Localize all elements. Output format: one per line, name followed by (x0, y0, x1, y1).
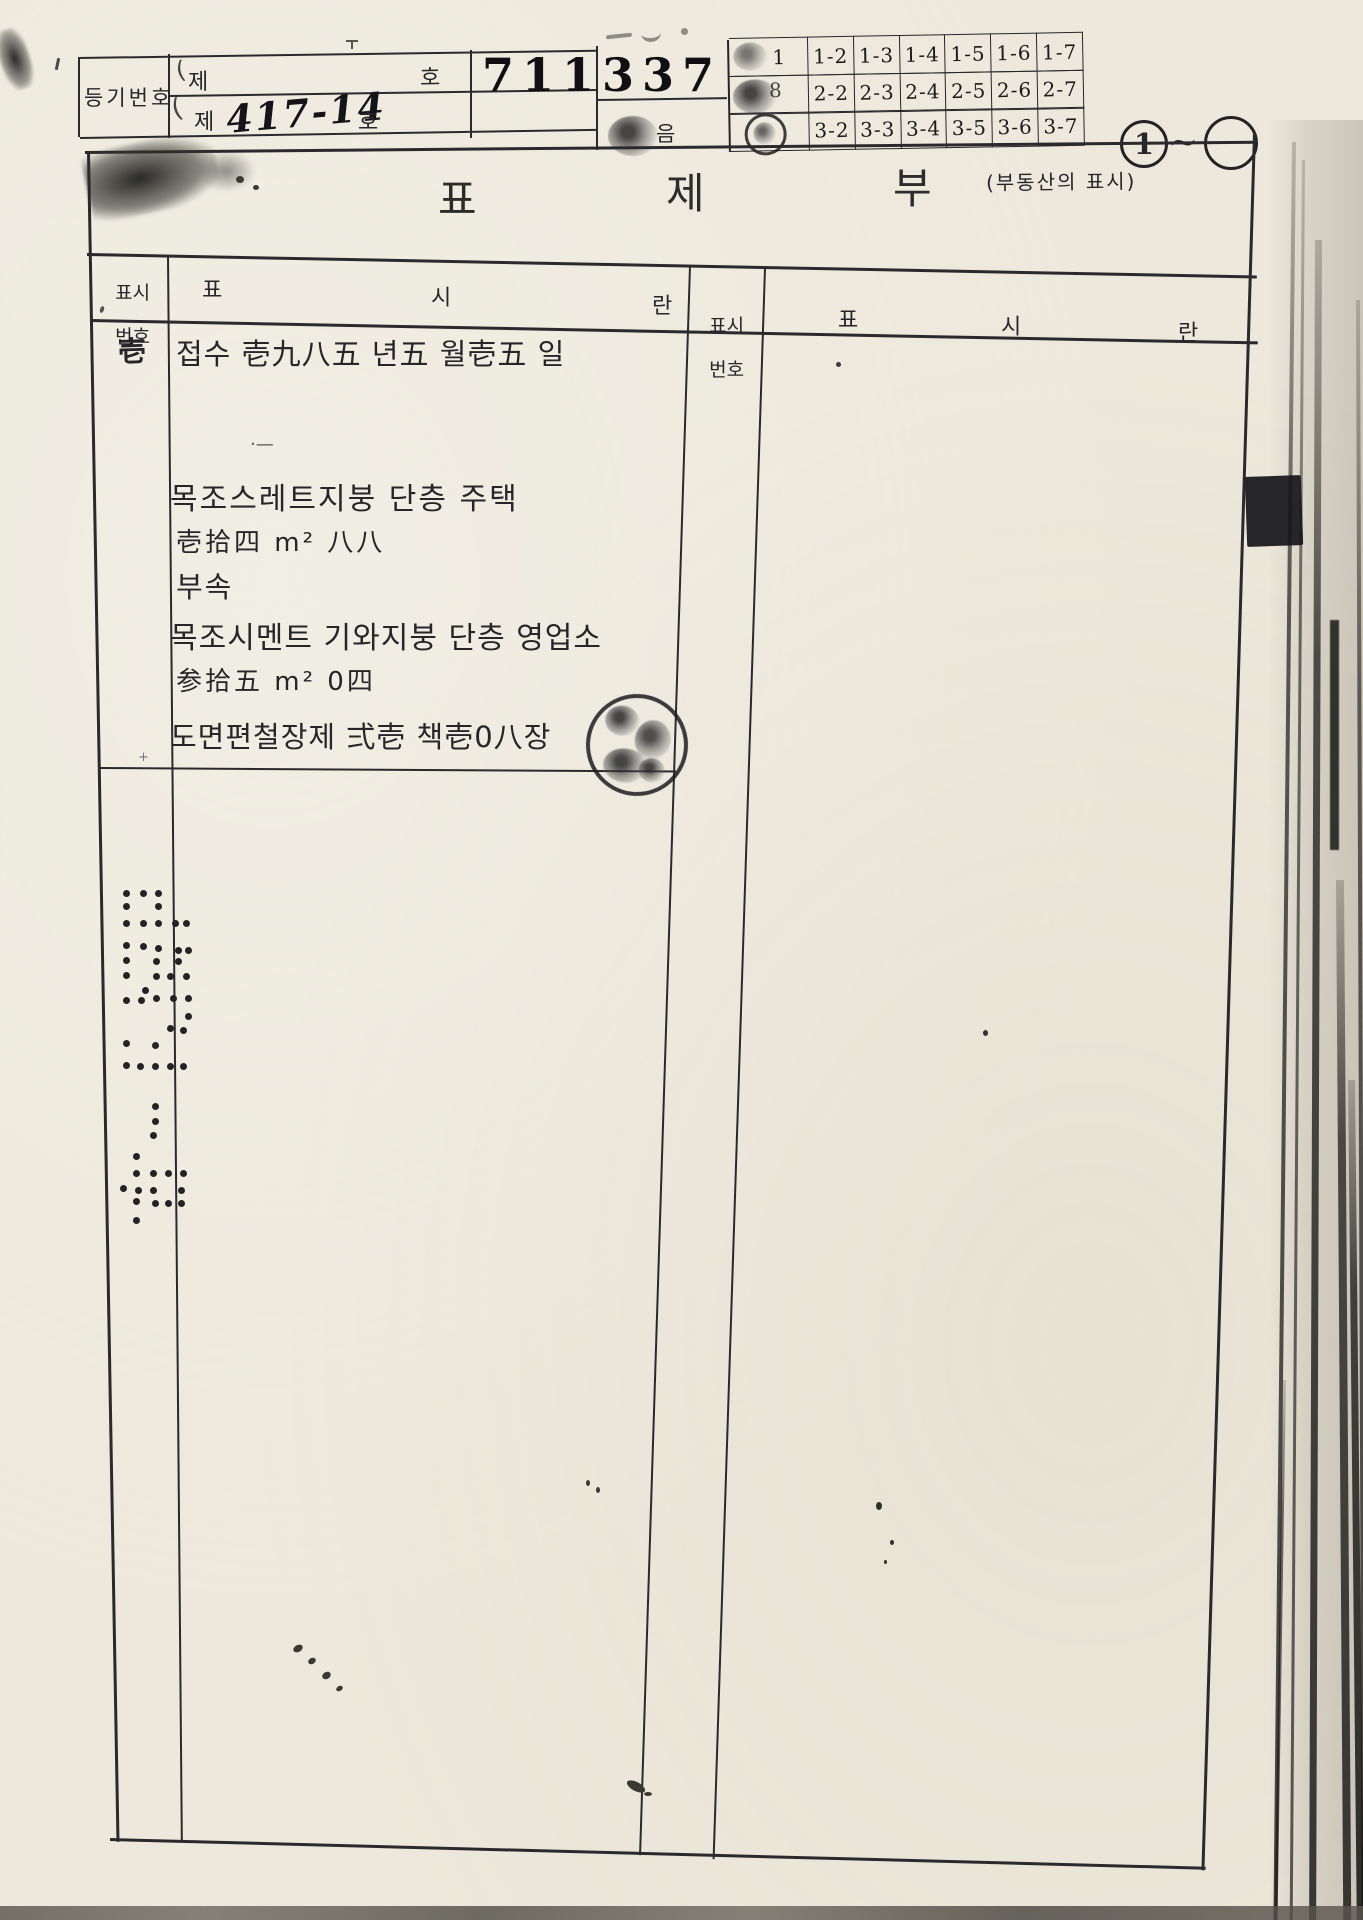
pen-scribble-artifact (681, 28, 688, 35)
circular-seal-stamp (744, 113, 787, 156)
table-border (87, 253, 1257, 278)
serial-number: 711337 (482, 48, 722, 102)
ink-speck (983, 1030, 988, 1036)
grid-first-value: 1 (772, 45, 786, 69)
smudge-trail (321, 1670, 332, 1681)
box-line (78, 57, 80, 137)
row-separator (99, 767, 676, 773)
building-line: 목조스레트지붕 단층 주택 (170, 474, 519, 518)
doc-number-suffix: 호 (420, 60, 441, 92)
ink-smudge (196, 150, 256, 192)
scanned-register-page: { "header": { "registration_label": "등기번… (0, 0, 1363, 1920)
grid-cell: 1-5 (945, 34, 991, 74)
ink-speck (0, 25, 39, 93)
table-border (1201, 133, 1255, 1870)
brace-mark: ( (174, 55, 188, 84)
ink-speck (876, 1502, 882, 1510)
official-seal-stamp (608, 116, 658, 156)
scan-black-blob (1245, 475, 1303, 547)
ink-speck (236, 176, 244, 183)
table-border (713, 268, 766, 1859)
title-char-3: 부 (893, 155, 932, 216)
ink-speck (836, 362, 841, 367)
smudge-trail (307, 1656, 317, 1665)
entry-number: 壱 (117, 330, 146, 371)
receipt-grid: 1 1-2 1-3 1-4 1-5 1-6 1-7 8 2-2 2-3 2-4 … (727, 34, 1078, 152)
header-col-si-right: 시 (1001, 309, 1021, 341)
grid-cell: 2-3 (854, 73, 900, 113)
header-no-line1: 표시 (115, 282, 150, 304)
bottom-edge-shadow (0, 1906, 1363, 1920)
grid-cell: 2-7 (1038, 69, 1084, 109)
circular-seal-stamp (579, 687, 694, 802)
grid-cell: 2-4 (900, 72, 946, 112)
pen-scribble-artifact (640, 23, 661, 42)
table-border (87, 152, 119, 1842)
ink-speck: + (138, 750, 149, 765)
pen-scribble-artifact (606, 33, 632, 40)
box-line (470, 50, 472, 138)
doc-number2-suffix: 호 (358, 104, 378, 136)
grid-cell: 2-5 (946, 71, 992, 111)
table-border (110, 1838, 1206, 1870)
area-line-2: 参拾五 m² 0四 (176, 661, 376, 698)
header-col-ran: 란 (652, 288, 672, 320)
title-subtitle: (부동산의 표시) (986, 165, 1137, 196)
annex-label: 부속 (176, 564, 233, 606)
grid-cell: 1-2 (808, 36, 854, 76)
ink-smear (644, 1792, 652, 1796)
ink-speck (884, 1560, 887, 1564)
ink-speck (351, 40, 353, 49)
title-char-2: 제 (666, 160, 705, 221)
area-line-1: 壱拾四 m² 八八 (176, 522, 385, 559)
header-no-line1: 표시 (709, 315, 744, 337)
grid-cell: 2-2 (809, 73, 855, 113)
header-no-label-right: 표시 번호 (697, 294, 744, 381)
grid-cell: 1-4 (900, 34, 946, 74)
ink-speck (253, 185, 259, 190)
header-col-si: 시 (431, 280, 451, 312)
official-seal-stamp (733, 43, 767, 72)
grid-cell: 3-6 (992, 107, 1038, 147)
header-col-pyo-right: 표 (838, 302, 858, 334)
smudge-trail (335, 1685, 344, 1693)
table-border (639, 266, 691, 1855)
grid-cell: 2-6 (992, 70, 1038, 110)
grid-cell: 1-7 (1037, 32, 1083, 72)
header-col-ran-right: 란 (1178, 315, 1198, 347)
grid-cell: 1-6 (991, 33, 1037, 73)
registration-number-label: 등기번호 (84, 82, 173, 112)
eup-note: 음 (656, 118, 675, 148)
grid-first-value: 8 (769, 78, 783, 102)
title-char-1: 표 (438, 166, 477, 227)
grid-stamp-cell: 8 (730, 74, 810, 114)
grid-cell: 1-3 (854, 35, 900, 75)
annex-line: 목조시멘트 기와지붕 단층 영업소 (170, 613, 602, 657)
scan-streak (1330, 620, 1339, 850)
header-col-pyo: 표 (202, 272, 222, 304)
dot-matrix-artifact (0, 0, 7, 7)
ink-speck (55, 58, 60, 70)
ink-speck (586, 1480, 590, 1486)
header-no-line2: 번호 (709, 359, 744, 381)
brace-mark: ( (168, 93, 186, 125)
drawing-file-line: 도면편철장제 弍壱 책壱0八장 (170, 714, 551, 756)
smudge-trail (292, 1643, 304, 1654)
grid-stamp-cell: 1 (729, 37, 809, 77)
grid-cell: 3-7 (1038, 107, 1084, 147)
receipt-line: 접수 壱九八五 년五 월壱五 일 (176, 331, 565, 373)
doc-number-prefix: 제 (188, 64, 208, 96)
dash-mark: ·— (250, 434, 274, 455)
ink-speck (890, 1540, 894, 1545)
